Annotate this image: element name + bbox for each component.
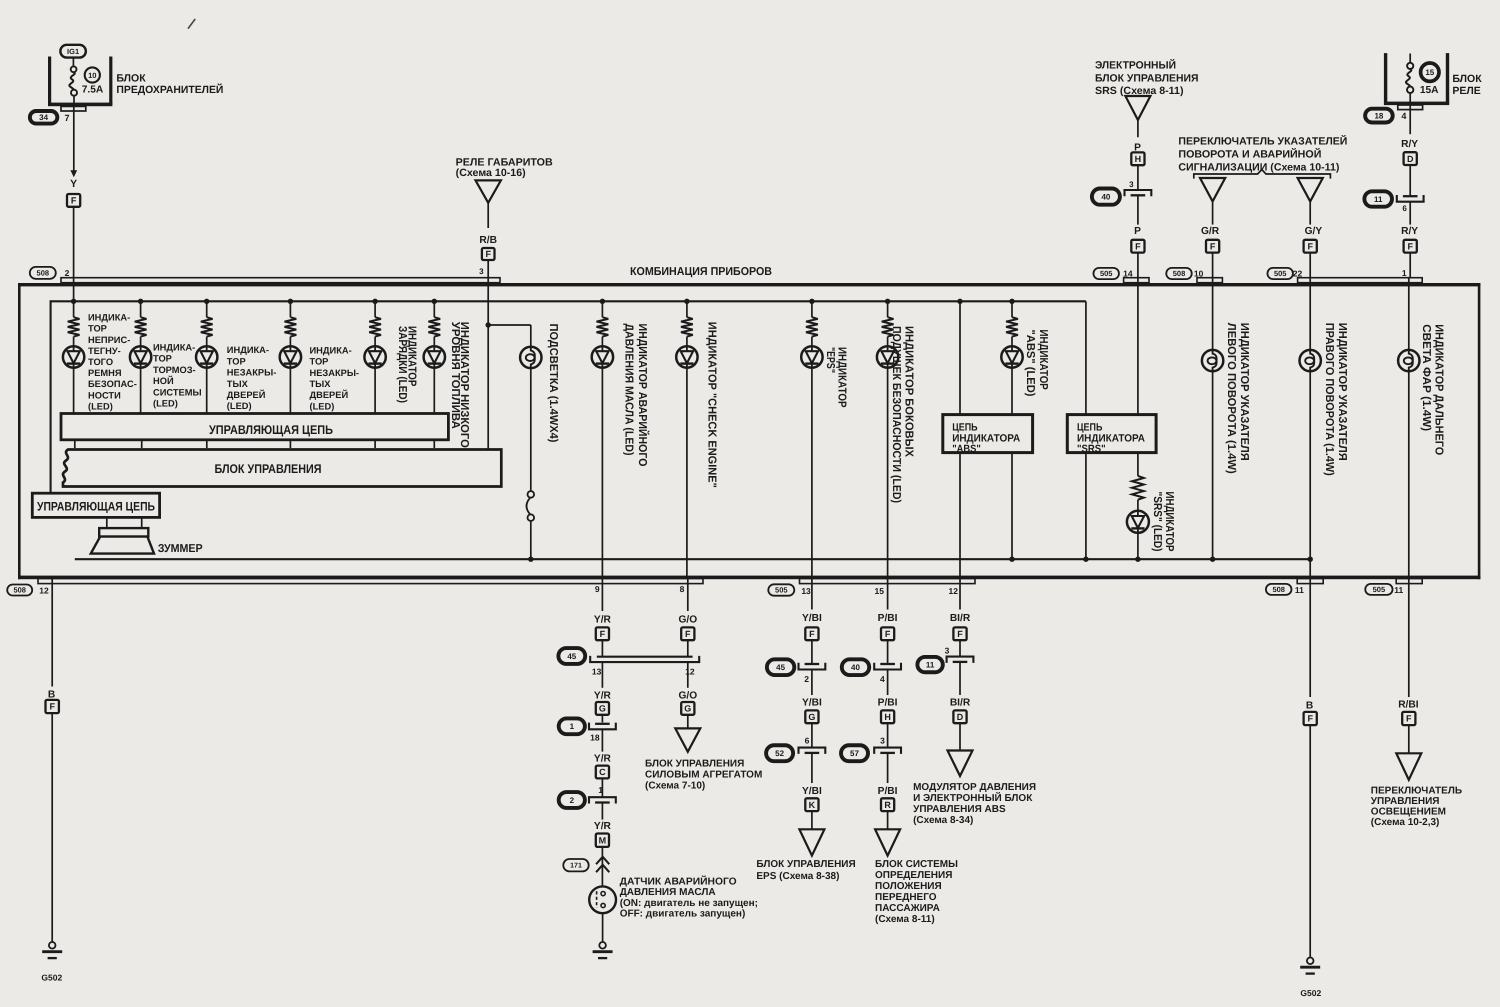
svg-text:G502: G502 [1300, 988, 1321, 998]
svg-text:ИНДИКАТОР УКАЗАТЕЛЯ: ИНДИКАТОР УКАЗАТЕЛЯ [1336, 323, 1348, 461]
svg-text:F: F [957, 629, 963, 639]
svg-text:1: 1 [598, 785, 603, 795]
svg-text:ДВЕРЕЙ: ДВЕРЕЙ [310, 389, 349, 400]
svg-text:Y/R: Y/R [594, 690, 612, 701]
svg-text:(LED): (LED) [88, 401, 113, 411]
svg-text:R/Y: R/Y [1401, 139, 1418, 150]
svg-text:НОЙ: НОЙ [153, 375, 174, 386]
svg-text:12: 12 [39, 585, 49, 595]
svg-text:ИНДИКАТОР: ИНДИКАТОР [1037, 330, 1049, 391]
svg-text:КОМБИНАЦИЯ ПРИБОРОВ: КОМБИНАЦИЯ ПРИБОРОВ [630, 266, 772, 278]
svg-text:УПРАВЛЯЮЩАЯ ЦЕПЬ: УПРАВЛЯЮЩАЯ ЦЕПЬ [209, 423, 333, 437]
svg-text:Y/R: Y/R [594, 754, 612, 765]
svg-text:БЛОК: БЛОК [1452, 73, 1482, 85]
svg-text:4: 4 [880, 674, 885, 684]
svg-text:ТЫХ: ТЫХ [310, 379, 332, 389]
svg-text:ИНДИКАТОР ДАЛЬНЕГО: ИНДИКАТОР ДАЛЬНЕГО [1433, 324, 1445, 455]
svg-text:"ABS" (LED): "ABS" (LED) [1024, 330, 1036, 397]
svg-text:D: D [1407, 154, 1414, 164]
svg-text:СИЛОВЫМ АГРЕГАТОМ: СИЛОВЫМ АГРЕГАТОМ [645, 769, 762, 780]
svg-text:BI/R: BI/R [950, 698, 971, 709]
svg-text:G: G [599, 704, 606, 714]
svg-text:18: 18 [1374, 111, 1383, 120]
svg-text:F: F [1407, 241, 1413, 251]
svg-text:(Схема 10-16): (Схема 10-16) [456, 167, 526, 179]
svg-text:ПОДУШЕК БЕЗОПАСНОСТИ (LED): ПОДУШЕК БЕЗОПАСНОСТИ (LED) [890, 326, 902, 503]
svg-text:F: F [1307, 714, 1313, 724]
svg-text:2: 2 [570, 796, 575, 805]
svg-text:11: 11 [1394, 585, 1403, 595]
svg-text:ПРАВОГО ПОВОРОТА (1.4W): ПРАВОГО ПОВОРОТА (1.4W) [1323, 323, 1335, 476]
svg-text:D: D [957, 712, 964, 722]
svg-text:ТОРМОЗ-: ТОРМОЗ- [153, 365, 196, 375]
svg-text:10: 10 [88, 71, 96, 80]
svg-text:СВЕТА ФАР (1.4W): СВЕТА ФАР (1.4W) [1420, 324, 1432, 431]
svg-text:ТОР: ТОР [310, 357, 329, 367]
svg-text:МОДУЛЯТОР ДАВЛЕНИЯ: МОДУЛЯТОР ДАВЛЕНИЯ [913, 782, 1036, 793]
svg-text:НЕЗАКРЫ-: НЕЗАКРЫ- [227, 368, 277, 378]
svg-text:ЛЕВОГО ПОВОРОТА (1.4W): ЛЕВОГО ПОВОРОТА (1.4W) [1225, 323, 1237, 474]
svg-text:ПЕРЕДНЕГО: ПЕРЕДНЕГО [875, 892, 937, 903]
svg-text:57: 57 [850, 749, 859, 758]
svg-text:ПРЕДОХРАНИТЕЛЕЙ: ПРЕДОХРАНИТЕЛЕЙ [116, 83, 223, 96]
svg-text:Y/BI: Y/BI [802, 613, 822, 624]
svg-text:(Схема 8-34): (Схема 8-34) [913, 815, 973, 826]
svg-text:40: 40 [851, 663, 860, 672]
svg-text:(LED): (LED) [153, 399, 178, 409]
svg-text:ТЫХ: ТЫХ [227, 379, 249, 389]
svg-text:508: 508 [13, 586, 26, 595]
svg-text:F: F [685, 629, 691, 639]
svg-text:40: 40 [1101, 192, 1110, 201]
svg-text:БЛОК: БЛОК [116, 72, 146, 84]
svg-text:G: G [684, 704, 691, 714]
svg-text:R/Y: R/Y [1401, 226, 1418, 237]
svg-text:(Схема 10-2,3): (Схема 10-2,3) [1371, 817, 1440, 828]
svg-text:R/BI: R/BI [1398, 699, 1419, 710]
svg-text:БЛОК УПРАВЛЕНИЯ: БЛОК УПРАВЛЕНИЯ [215, 462, 322, 476]
svg-text:Y: Y [70, 178, 77, 190]
svg-text:G/R: G/R [1201, 226, 1220, 237]
svg-text:ИНДИКА-: ИНДИКА- [153, 343, 195, 353]
svg-text:2: 2 [65, 268, 70, 278]
svg-text:P/BI: P/BI [878, 786, 898, 797]
svg-text:РЕМНЯ: РЕМНЯ [88, 368, 122, 378]
svg-text:505: 505 [1373, 585, 1386, 594]
svg-text:11: 11 [926, 660, 935, 669]
svg-text:B: B [1306, 701, 1313, 712]
svg-text:6: 6 [805, 735, 810, 745]
svg-text:P: P [1134, 226, 1141, 237]
svg-text:P/BI: P/BI [878, 613, 898, 624]
svg-text:3: 3 [1129, 180, 1134, 189]
svg-text:ИНДИКА-: ИНДИКА- [310, 345, 352, 355]
svg-text:9: 9 [595, 584, 600, 594]
svg-text:P/BI: P/BI [878, 698, 898, 709]
svg-text:Y/BI: Y/BI [802, 698, 822, 709]
svg-text:ТОГО: ТОГО [88, 357, 113, 367]
svg-text:505: 505 [1274, 269, 1287, 278]
svg-text:BI/R: BI/R [950, 613, 971, 624]
svg-text:ТОР: ТОР [153, 354, 172, 364]
svg-text:ИНДИКА-: ИНДИКА- [88, 313, 130, 323]
svg-text:12: 12 [685, 667, 695, 677]
svg-text:ИНДИКАТОР БОКОВЫХ: ИНДИКАТОР БОКОВЫХ [903, 326, 915, 457]
svg-text:12: 12 [949, 586, 959, 596]
svg-text:508: 508 [1173, 269, 1186, 278]
svg-text:ИНДИКАТОР "CHECK ENGINE": ИНДИКАТОР "CHECK ENGINE" [706, 322, 718, 488]
svg-text:Y/R: Y/R [594, 821, 612, 832]
svg-text:УПРАВЛЕНИЯ: УПРАВЛЕНИЯ [1371, 796, 1440, 807]
svg-text:ИНДИКА-: ИНДИКА- [227, 345, 269, 355]
svg-text:11: 11 [1295, 585, 1304, 595]
svg-text:ЗУММЕР: ЗУММЕР [158, 543, 203, 555]
svg-text:ЭЛЕКТРОННЫЙ: ЭЛЕКТРОННЫЙ [1095, 59, 1176, 72]
svg-text:3: 3 [479, 267, 484, 276]
svg-text:ПОДСВЕТКА (1.4WX4): ПОДСВЕТКА (1.4WX4) [547, 324, 559, 443]
svg-text:НЕПРИС-: НЕПРИС- [88, 335, 130, 345]
svg-text:8: 8 [680, 584, 685, 594]
svg-text:ЗАРЯДКИ (LED): ЗАРЯДКИ (LED) [396, 326, 408, 403]
svg-text:34: 34 [39, 113, 48, 122]
svg-text:7: 7 [64, 113, 69, 123]
svg-text:ОСВЕЩЕНИЕМ: ОСВЕЩЕНИЕМ [1371, 806, 1446, 817]
svg-text:505: 505 [1100, 269, 1113, 278]
svg-text:G: G [808, 712, 815, 722]
svg-text:18: 18 [590, 733, 600, 743]
svg-text:(Схема 8-11): (Схема 8-11) [875, 914, 935, 925]
svg-text:508: 508 [1272, 585, 1285, 594]
svg-text:УПРАВЛЕНИЯ ABS: УПРАВЛЕНИЯ ABS [913, 804, 1006, 815]
svg-text:H: H [884, 712, 891, 722]
svg-text:И ЭЛЕКТРОННЫЙ БЛОК: И ЭЛЕКТРОННЫЙ БЛОК [913, 791, 1033, 804]
svg-text:15: 15 [1425, 68, 1434, 77]
svg-text:ДАВЛЕНИЯ МАСЛА (LED): ДАВЛЕНИЯ МАСЛА (LED) [623, 324, 635, 456]
svg-text:IG1: IG1 [67, 47, 79, 56]
svg-text:УРОВНЯ ТОПЛИВА: УРОВНЯ ТОПЛИВА [449, 322, 461, 429]
svg-text:ТОР: ТОР [88, 324, 107, 334]
svg-text:"SRS" (LED): "SRS" (LED) [1151, 492, 1163, 552]
svg-text:ДАВЛЕНИЯ МАСЛА: ДАВЛЕНИЯ МАСЛА [620, 887, 716, 898]
svg-text:F: F [49, 702, 55, 712]
svg-text:F: F [1307, 241, 1313, 251]
svg-text:EPS (Схема 8-38): EPS (Схема 8-38) [756, 871, 839, 882]
svg-text:(LED): (LED) [227, 401, 252, 411]
svg-text:F: F [1135, 241, 1141, 251]
svg-text:НЕЗАКРЫ-: НЕЗАКРЫ- [310, 368, 360, 378]
svg-text:Y/R: Y/R [594, 614, 612, 625]
svg-text:ПЕРЕКЛЮЧАТЕЛЬ: ПЕРЕКЛЮЧАТЕЛЬ [1371, 785, 1462, 796]
svg-text:(Схема 7-10): (Схема 7-10) [645, 780, 705, 791]
svg-text:СИСТЕМЫ: СИСТЕМЫ [153, 387, 202, 397]
svg-text:6: 6 [1402, 204, 1407, 213]
svg-text:13: 13 [801, 586, 811, 596]
svg-text:БЛОК УПРАВЛЕНИЯ: БЛОК УПРАВЛЕНИЯ [756, 859, 855, 870]
svg-text:1: 1 [1402, 268, 1407, 278]
svg-text:ПЕРЕКЛЮЧАТЕЛЬ УКАЗАТЕЛЕЙ: ПЕРЕКЛЮЧАТЕЛЬ УКАЗАТЕЛЕЙ [1178, 135, 1347, 148]
svg-text:G/Y: G/Y [1305, 226, 1323, 237]
svg-text:РЕЛЕ: РЕЛЕ [1452, 85, 1480, 97]
svg-text:505: 505 [775, 586, 788, 595]
svg-text:G/O: G/O [678, 690, 697, 701]
svg-text:2: 2 [804, 674, 809, 684]
svg-text:Y/BI: Y/BI [802, 786, 822, 797]
svg-text:БЛОК УПРАВЛЕНИЯ: БЛОК УПРАВЛЕНИЯ [1095, 72, 1199, 84]
svg-text:45: 45 [776, 663, 785, 672]
svg-text:ДАТЧИК АВАРИЙНОГО: ДАТЧИК АВАРИЙНОГО [620, 875, 737, 888]
svg-text:171: 171 [570, 863, 582, 870]
svg-text:F: F [600, 629, 606, 639]
svg-text:(ON: двигатель не запущен;: (ON: двигатель не запущен; [620, 898, 758, 909]
svg-text:OFF: двигатель запущен): OFF: двигатель запущен) [620, 908, 746, 919]
svg-text:ПОЛОЖЕНИЯ: ПОЛОЖЕНИЯ [875, 881, 942, 892]
svg-text:НОСТИ: НОСТИ [88, 390, 121, 400]
svg-text:F: F [1406, 714, 1412, 724]
svg-text:"EPS": "EPS" [824, 347, 836, 373]
svg-text:13: 13 [592, 667, 602, 677]
svg-text:F: F [71, 196, 77, 206]
svg-text:ИНДИКАТОР УКАЗАТЕЛЯ: ИНДИКАТОР УКАЗАТЕЛЯ [1238, 323, 1250, 461]
svg-text:4: 4 [1401, 111, 1406, 121]
svg-text:R/B: R/B [479, 235, 497, 246]
svg-text:ОПРЕДЕЛЕНИЯ: ОПРЕДЕЛЕНИЯ [875, 870, 952, 881]
svg-text:ИНДИКАТОР: ИНДИКАТОР [1163, 492, 1175, 552]
svg-text:3: 3 [880, 735, 885, 745]
svg-text:M: M [599, 835, 607, 845]
svg-text:ДВЕРЕЙ: ДВЕРЕЙ [227, 389, 266, 400]
svg-text:508: 508 [37, 269, 50, 278]
svg-text:ТОР: ТОР [227, 356, 246, 366]
svg-text:"ABS": "ABS" [952, 443, 981, 455]
svg-text:"SRS": "SRS" [1077, 443, 1106, 455]
svg-text:H: H [1135, 154, 1142, 164]
svg-text:3: 3 [945, 646, 950, 656]
svg-text:G502: G502 [41, 973, 62, 983]
svg-text:БЕЗОПАС-: БЕЗОПАС- [88, 379, 137, 389]
svg-text:ПОВОРОТА И АВАРИЙНОЙ: ПОВОРОТА И АВАРИЙНОЙ [1178, 148, 1321, 161]
svg-text:F: F [809, 629, 815, 639]
svg-text:1: 1 [570, 722, 575, 731]
svg-text:F: F [1210, 241, 1216, 251]
svg-text:ТЕГНУ-: ТЕГНУ- [88, 346, 121, 356]
svg-text:(LED): (LED) [310, 401, 335, 411]
svg-text:7.5A: 7.5A [82, 84, 104, 95]
svg-text:15: 15 [875, 586, 885, 596]
svg-text:K: K [809, 800, 816, 810]
svg-text:C: C [599, 767, 606, 777]
svg-text:F: F [485, 249, 491, 259]
svg-text:ИНДИКАТОР АВАРИЙНОГО: ИНДИКАТОР АВАРИЙНОГО [636, 324, 650, 467]
svg-text:52: 52 [775, 749, 784, 758]
svg-text:УПРАВЛЯЮЩАЯ ЦЕПЬ: УПРАВЛЯЮЩАЯ ЦЕПЬ [37, 499, 155, 513]
svg-text:11: 11 [1374, 195, 1383, 204]
svg-text:45: 45 [567, 652, 576, 661]
svg-text:БЛОК СИСТЕМЫ: БЛОК СИСТЕМЫ [875, 859, 958, 870]
svg-text:БЛОК УПРАВЛЕНИЯ: БЛОК УПРАВЛЕНИЯ [645, 758, 744, 769]
svg-text:ИНДИКАТОР: ИНДИКАТОР [836, 347, 848, 408]
svg-text:G/O: G/O [678, 614, 697, 625]
svg-text:ПАССАЖИРА: ПАССАЖИРА [875, 903, 940, 914]
svg-text:R: R [884, 800, 891, 810]
svg-text:15A: 15A [1420, 85, 1439, 96]
svg-text:F: F [885, 629, 891, 639]
